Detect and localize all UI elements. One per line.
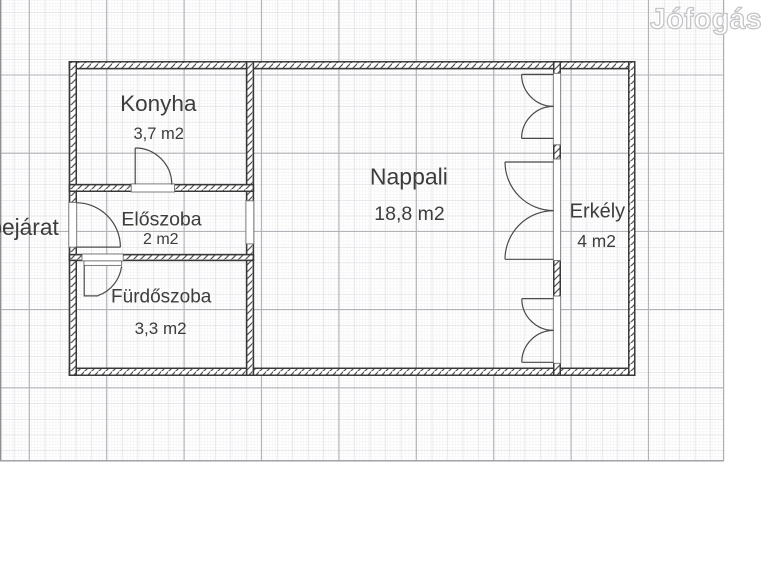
svg-text:3,7 m2: 3,7 m2 <box>133 125 183 143</box>
svg-text:Előszoba: Előszoba <box>121 208 201 230</box>
svg-text:Nappali: Nappali <box>370 163 448 189</box>
svg-text:Fürdőszoba: Fürdőszoba <box>111 286 212 307</box>
svg-text:3,3 m2: 3,3 m2 <box>135 319 187 338</box>
svg-text:Jófogás: Jófogás <box>650 3 762 35</box>
svg-text:bejárat: bejárat <box>0 214 59 240</box>
svg-text:4 m2: 4 m2 <box>577 231 616 251</box>
svg-text:Erkély: Erkély <box>570 201 626 223</box>
svg-text:2 m2: 2 m2 <box>143 231 179 248</box>
svg-text:18,8 m2: 18,8 m2 <box>374 203 444 225</box>
svg-text:Konyha: Konyha <box>120 91 197 116</box>
